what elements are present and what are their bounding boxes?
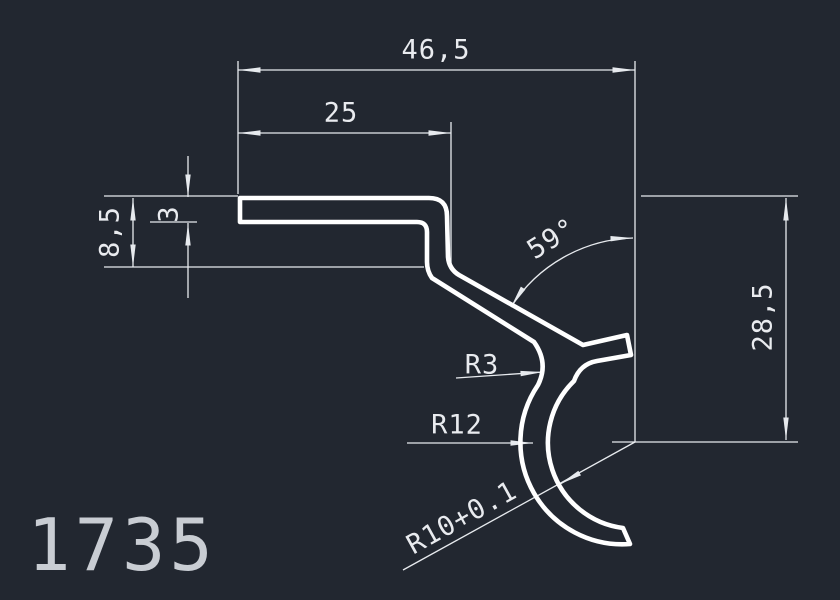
dim-wall-thickness-label: 3: [156, 205, 183, 222]
cad-drawing-viewport: 46,5 25 8,5 3 59° 28,5 R3 R12 R10+0.1 17…: [0, 0, 840, 600]
part-number: 1735: [27, 509, 216, 581]
profile-outline: [240, 198, 631, 544]
dim-outer-radius-label: R12: [431, 412, 483, 439]
dim-total-height-label: 28,5: [750, 282, 777, 351]
leader-inner-radius: [403, 442, 635, 570]
dim-total-width-label: 46,5: [401, 37, 470, 64]
dim-step-height-label: 8,5: [97, 206, 124, 258]
dim-fillet-radius-label: R3: [465, 352, 500, 379]
extension-lines: [104, 61, 798, 442]
dimension-lines: [133, 70, 786, 570]
dim-flat-width-label: 25: [324, 100, 359, 127]
leader-inner-radius-arrow: [560, 474, 578, 484]
